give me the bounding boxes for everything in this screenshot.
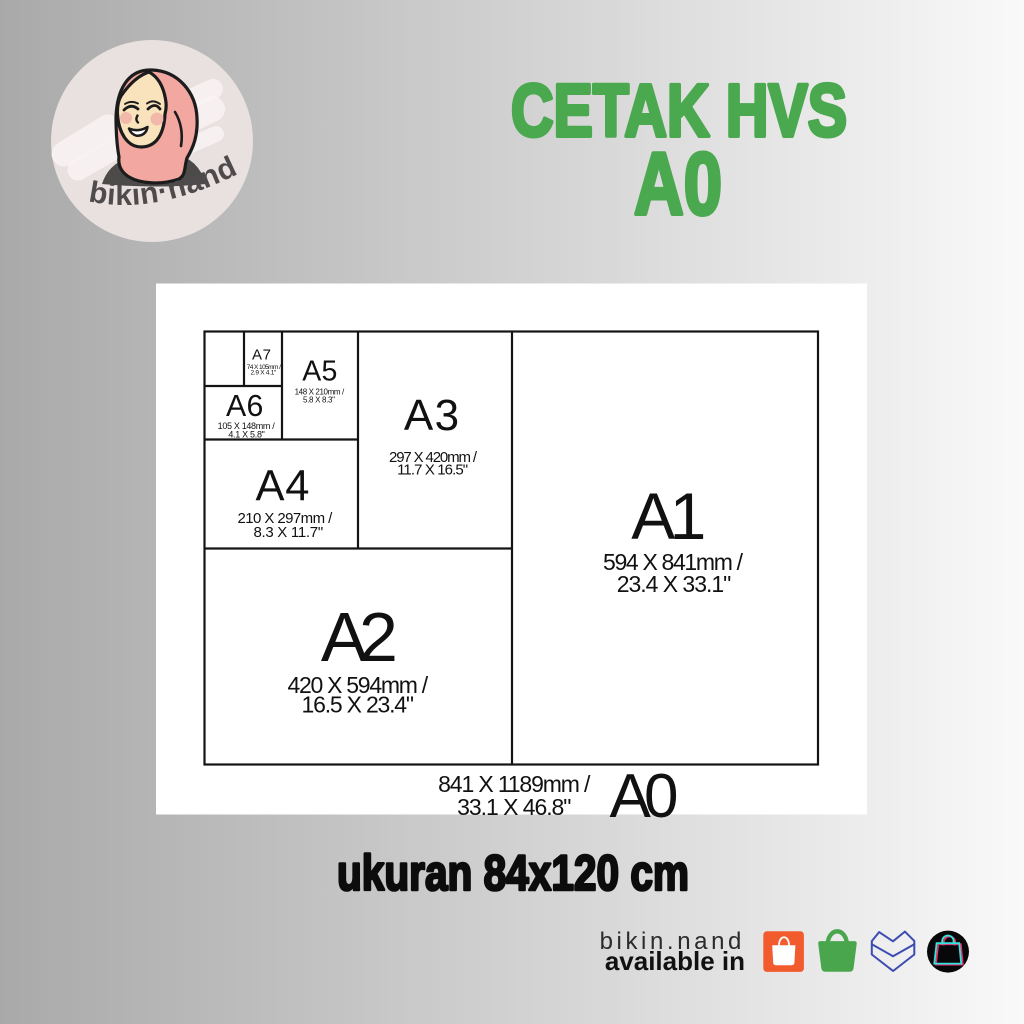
svg-text:2.9 X 4.1": 2.9 X 4.1" [250,370,277,377]
svg-text:4.1 X 5.8": 4.1 X 5.8" [228,429,265,439]
svg-text:A7: A7 [252,347,271,364]
svg-text:A1: A1 [631,479,706,553]
svg-text:A0: A0 [610,762,679,831]
svg-text:16.5 X 23.4": 16.5 X 23.4" [302,692,415,718]
svg-text:A3: A3 [404,391,459,440]
svg-text:A0: A0 [634,134,722,233]
svg-text:A4: A4 [256,463,310,511]
svg-text:33.1 X 46.8": 33.1 X 46.8" [457,794,571,820]
svg-text:available in: available in [605,946,745,976]
svg-text:5.8 X 8.3": 5.8 X 8.3" [303,395,335,404]
svg-text:A2: A2 [321,598,398,676]
svg-text:A6: A6 [226,390,263,423]
svg-text:11.7 X 16.5": 11.7 X 16.5" [397,462,468,479]
svg-text:ukuran 84x120 cm: ukuran 84x120 cm [337,845,689,901]
svg-text:8.3 X 11.7": 8.3 X 11.7" [253,524,323,541]
svg-text:23.4 X 33.1": 23.4 X 33.1" [617,571,732,597]
svg-text:A5: A5 [302,355,337,387]
